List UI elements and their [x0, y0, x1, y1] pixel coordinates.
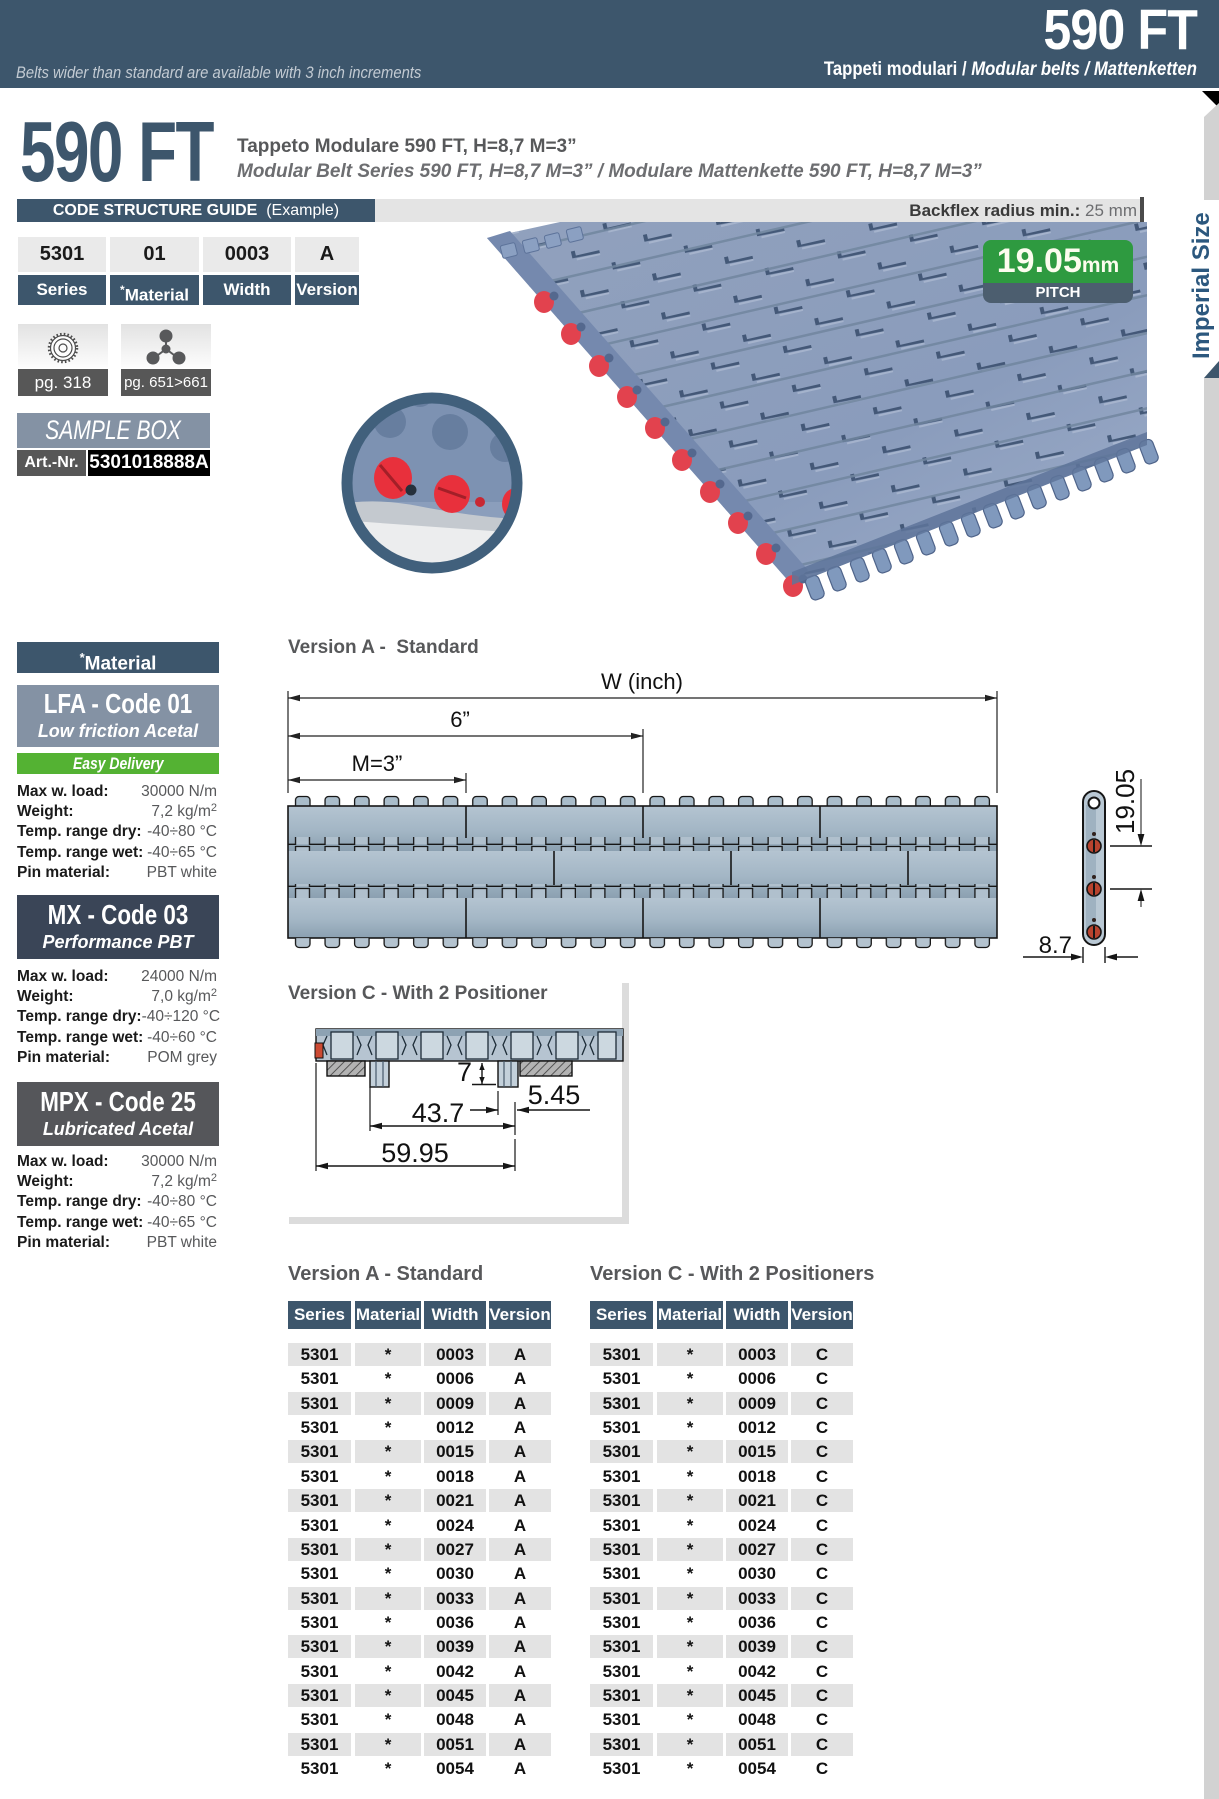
svg-text:6”: 6” — [450, 707, 470, 732]
svg-text:8.7: 8.7 — [1039, 932, 1072, 959]
svg-text:W (inch): W (inch) — [601, 669, 683, 694]
svg-text:7: 7 — [457, 1057, 472, 1087]
svg-text:43.7: 43.7 — [412, 1098, 465, 1128]
svg-text:5.45: 5.45 — [528, 1080, 581, 1110]
svg-text:M=3”: M=3” — [352, 751, 403, 776]
svg-text:59.95: 59.95 — [381, 1138, 449, 1168]
svg-text:19.05: 19.05 — [1110, 769, 1140, 834]
